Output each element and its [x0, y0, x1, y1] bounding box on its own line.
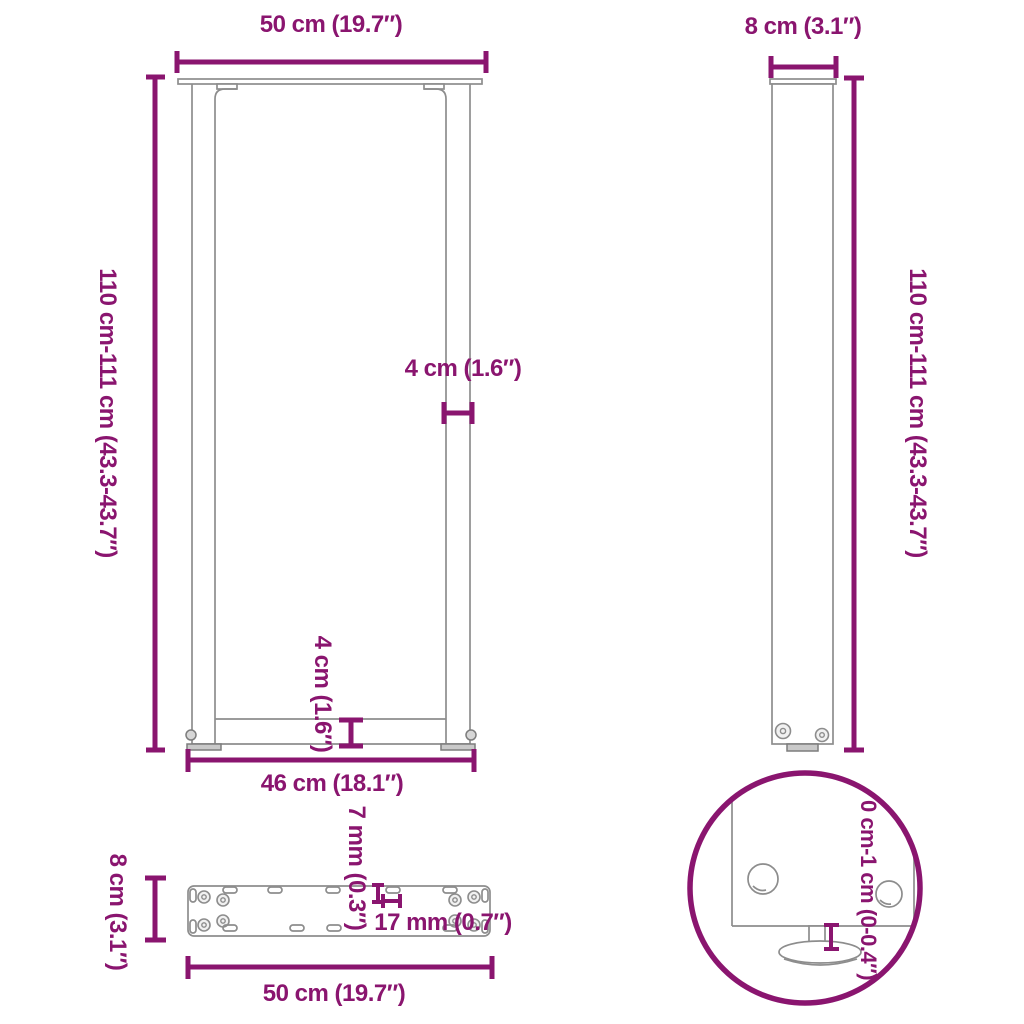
side-foot [787, 744, 818, 751]
detail-adjustment-label: 0 cm-1 cm (0-0.4″) [855, 800, 881, 980]
front-left-adjuster [186, 730, 196, 740]
product-dimension-diagram: 50 cm (19.7″) 110 cm-111 cm (43.3-43.7″)… [0, 0, 1024, 1024]
plate-width-label: 50 cm (19.7″) [263, 980, 405, 1008]
front-width-label: 50 cm (19.7″) [260, 11, 402, 39]
front-left-foot [187, 744, 221, 750]
front-height-label: 110 cm-111 cm (43.3-43.7″) [93, 268, 121, 557]
side-view-leg-drawing [770, 79, 836, 751]
front-right-adjuster [466, 730, 476, 740]
front-tube-width-label: 4 cm (1.6″) [405, 355, 522, 383]
front-right-foot [441, 744, 475, 750]
plate-slot-width-label: 7 mm (0.3″) [342, 806, 370, 931]
detail-screw [748, 864, 778, 894]
detail-circle-drawing [690, 773, 920, 1003]
plate-depth-label: 8 cm (3.1″) [103, 854, 131, 971]
side-height-label: 110 cm-111 cm (43.3-43.7″) [903, 268, 931, 557]
side-screw [816, 729, 829, 742]
front-inner-width-label: 46 cm (18.1″) [261, 770, 403, 798]
side-screw [776, 724, 791, 739]
detail-foot-base [779, 941, 861, 963]
front-crossbar-label: 4 cm (1.6″) [308, 636, 336, 753]
side-column [772, 84, 833, 744]
side-depth-label: 8 cm (3.1″) [745, 13, 862, 41]
plate-slot-length-label: 17 mm (0.7″) [374, 909, 512, 937]
